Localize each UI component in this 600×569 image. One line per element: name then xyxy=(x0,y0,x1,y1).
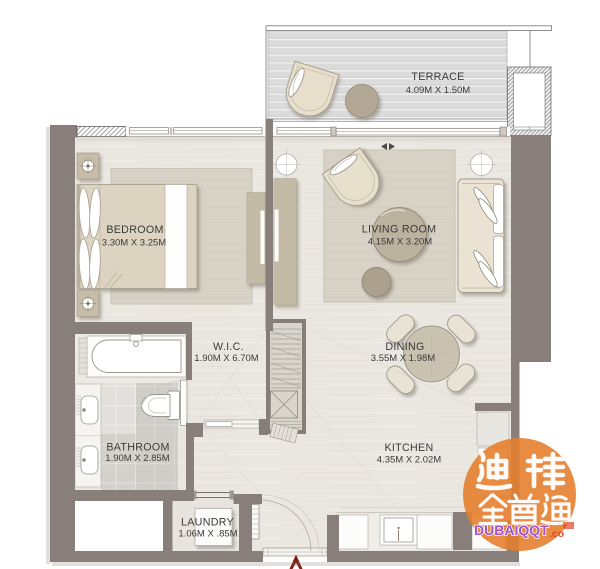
svg-text:1.90M X 2.85M: 1.90M X 2.85M xyxy=(105,453,170,464)
svg-text:LAUNDRY: LAUNDRY xyxy=(181,517,234,529)
svg-text:1.06M X .85M: 1.06M X .85M xyxy=(178,529,237,540)
svg-text:1.90M X 6.70M: 1.90M X 6.70M xyxy=(194,353,259,364)
svg-text:3.30M X 3.25M: 3.30M X 3.25M xyxy=(102,238,167,249)
svg-text:DUBAIQQT: DUBAIQQT xyxy=(474,522,549,538)
svg-text:KITCHEN: KITCHEN xyxy=(384,442,433,454)
svg-text:TERRACE: TERRACE xyxy=(411,71,464,83)
svg-text:4.35M X 2.02M: 4.35M X 2.02M xyxy=(377,455,442,466)
svg-text:BEDROOM: BEDROOM xyxy=(106,224,163,236)
svg-text:.co: .co xyxy=(549,528,564,540)
svg-text:4.15M X 3.20M: 4.15M X 3.20M xyxy=(368,237,433,248)
svg-text:4.09M X 1.50M: 4.09M X 1.50M xyxy=(406,85,471,96)
svg-text:W.I.C.: W.I.C. xyxy=(213,341,244,353)
svg-text:BATHROOM: BATHROOM xyxy=(106,442,169,454)
svg-text:DINING: DINING xyxy=(385,341,424,353)
svg-text:3.55M X 1.98M: 3.55M X 1.98M xyxy=(371,353,436,364)
svg-text:LIVING ROOM: LIVING ROOM xyxy=(362,224,437,236)
